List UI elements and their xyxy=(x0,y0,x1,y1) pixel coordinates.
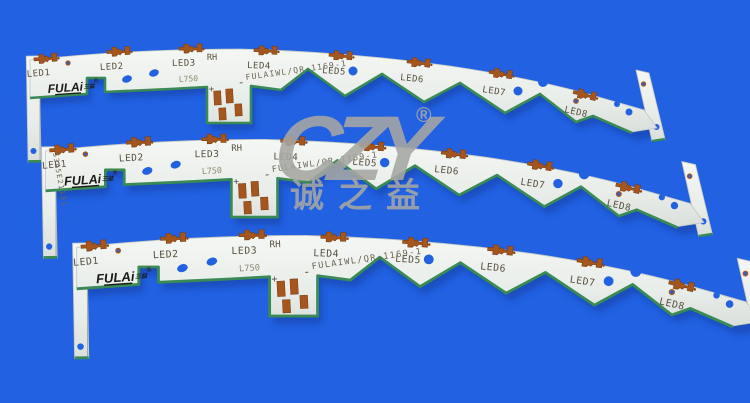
led2-label: LED2 xyxy=(153,249,179,261)
polarity-minus: - xyxy=(237,76,244,89)
registered-icon: ® xyxy=(93,77,99,84)
watermark-brand-name: 诚之益 xyxy=(290,177,434,215)
length-marking: L750 xyxy=(202,165,223,176)
led3-label: LED3 xyxy=(231,245,257,256)
length-marking: L750 xyxy=(239,263,260,274)
led2-label: LED2 xyxy=(119,152,144,164)
rh-marking: RH xyxy=(269,239,281,250)
polarity-plus: + xyxy=(233,176,240,187)
led3-label: LED3 xyxy=(194,149,219,160)
registered-icon: ® xyxy=(145,266,152,274)
polarity-minus: - xyxy=(303,264,311,278)
polarity-plus: + xyxy=(271,274,278,285)
rh-marking: RH xyxy=(231,144,242,154)
watermark-registered-icon: ® xyxy=(416,104,432,127)
rh-marking: RH xyxy=(207,53,218,63)
watermark: CZY ® 诚之益 xyxy=(270,96,448,215)
polarity-minus: - xyxy=(263,167,271,181)
led1-label: LED1 xyxy=(26,68,50,80)
led1-label: LED1 xyxy=(73,256,100,269)
registered-icon: ® xyxy=(112,169,119,177)
led3-label: LED3 xyxy=(172,59,196,69)
pcb-photo: LED1 LED2 LED3 LED4 LED5 LED6 LED7 LED8 … xyxy=(0,0,750,403)
led2-label: LED2 xyxy=(100,62,124,73)
photo-stage: LED1 LED2 LED3 LED4 LED5 LED6 LED7 LED8 … xyxy=(0,0,750,403)
length-marking: L750 xyxy=(179,74,199,84)
